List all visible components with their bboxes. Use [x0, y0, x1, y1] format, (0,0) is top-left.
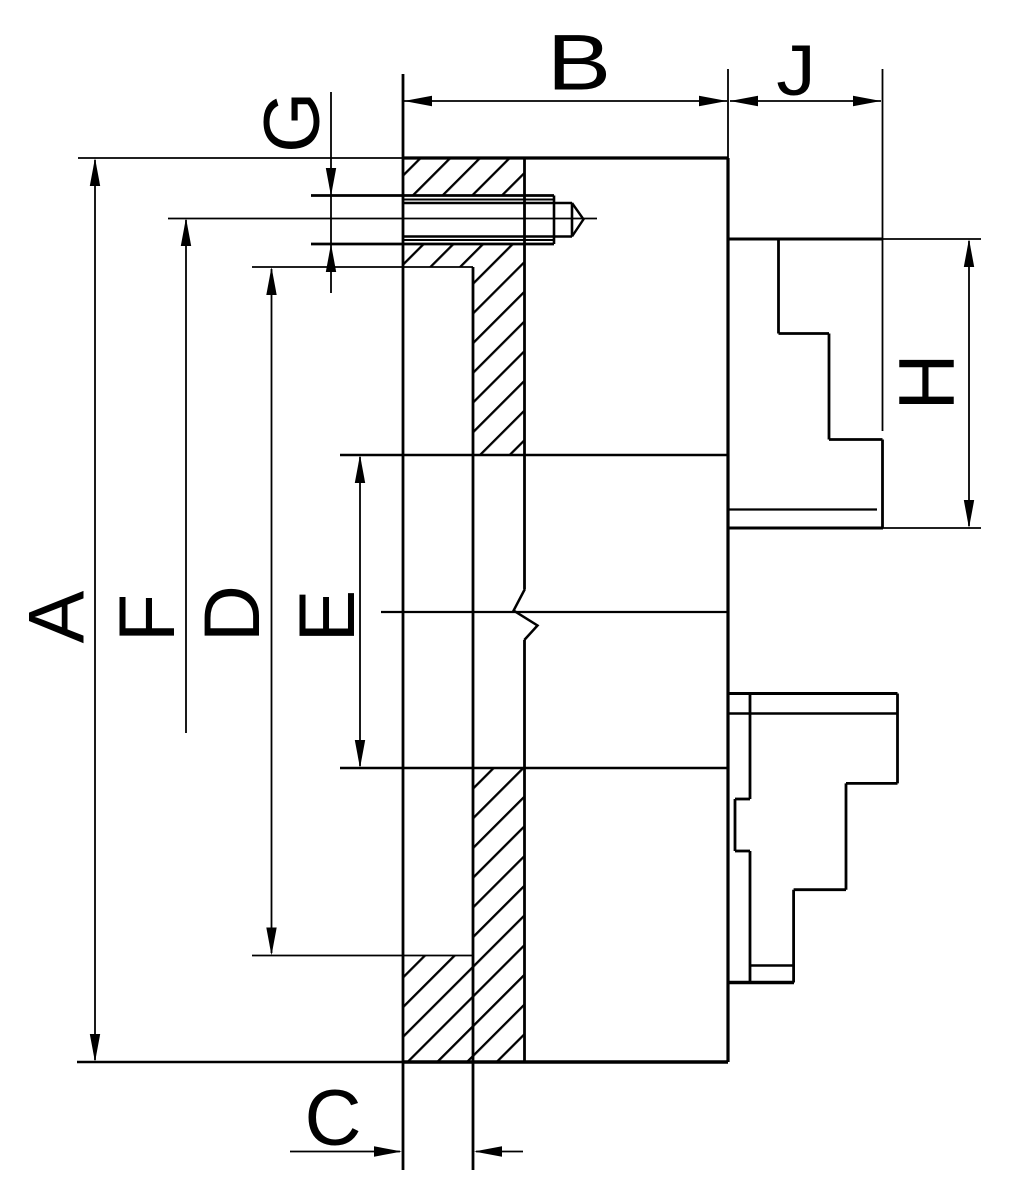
svg-text:H: H — [882, 353, 971, 410]
svg-text:A: A — [12, 590, 101, 643]
svg-text:C: C — [304, 1073, 361, 1162]
svg-text:G: G — [247, 92, 336, 153]
svg-text:J: J — [776, 31, 816, 110]
svg-text:E: E — [282, 590, 371, 643]
svg-text:D: D — [187, 585, 276, 642]
svg-text:B: B — [547, 18, 611, 107]
svg-text:F: F — [102, 594, 191, 642]
